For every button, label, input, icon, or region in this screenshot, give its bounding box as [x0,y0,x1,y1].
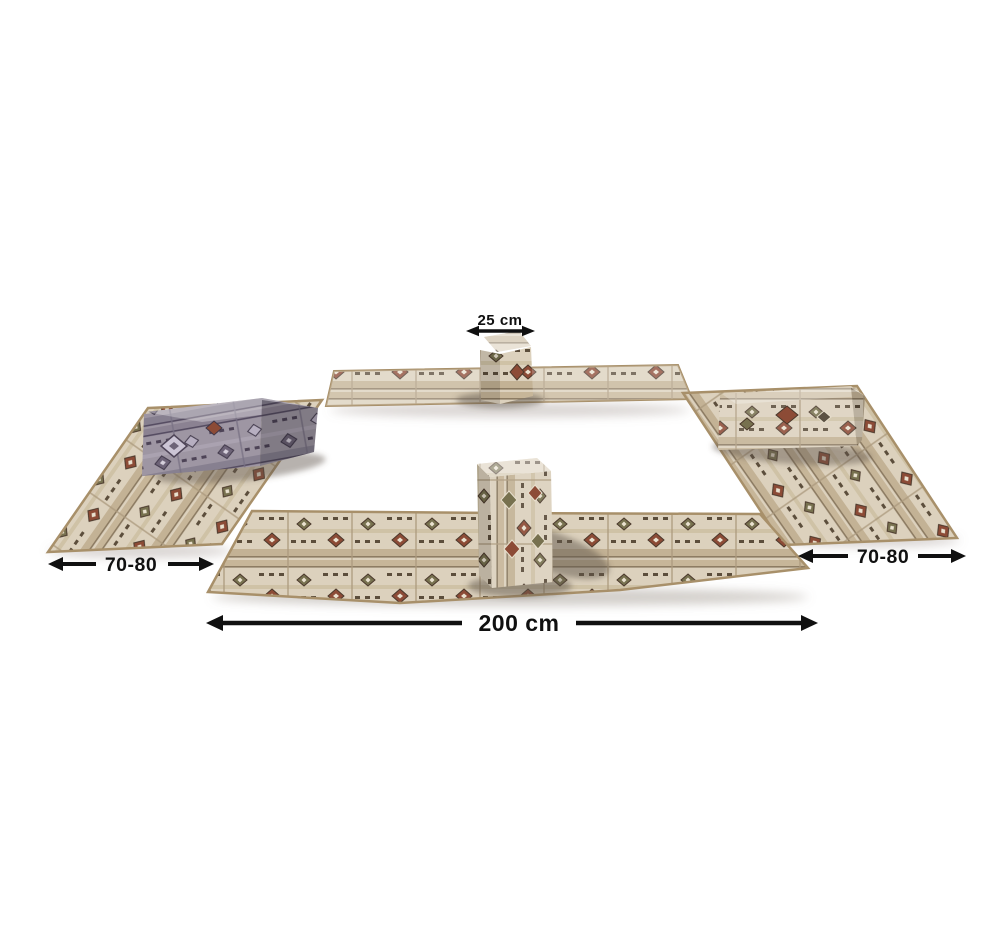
dimension-200cm: 200 cm [206,610,818,636]
arrow-head-left-icon [48,557,63,571]
cushion-front-face-light [490,471,553,588]
back-center-cushion [480,331,533,404]
dimension-25cm: 25 cm [466,312,535,336]
dimension-70-80-left: 70-80 [48,554,214,576]
dimension-label-70-80-right: 70-80 [857,546,909,568]
right-backrest-cushion [718,386,865,450]
cushion-left-face-shade [480,350,500,404]
center-cushion [477,458,553,588]
dimension-70-80-right: 70-80 [798,546,966,568]
arrow-head-right-icon [951,549,966,563]
arrow-head-left-icon [206,615,223,631]
arrow-head-right-icon [522,326,535,336]
floor-seating-set-scene: 25 cm 70-80 70-80 200 cm [0,0,1000,949]
arrow-head-right-icon [199,557,214,571]
product-dimension-image: 25 cm 70-80 70-80 200 cm [0,0,1000,949]
dimension-label-70-80-left: 70-80 [105,554,157,576]
dimension-label-200cm: 200 cm [478,610,559,636]
arrow-head-left-icon [466,326,479,336]
cushion-left-face-shade [477,464,492,588]
arrow-head-right-icon [801,615,818,631]
dimension-label-25cm: 25 cm [477,312,522,329]
